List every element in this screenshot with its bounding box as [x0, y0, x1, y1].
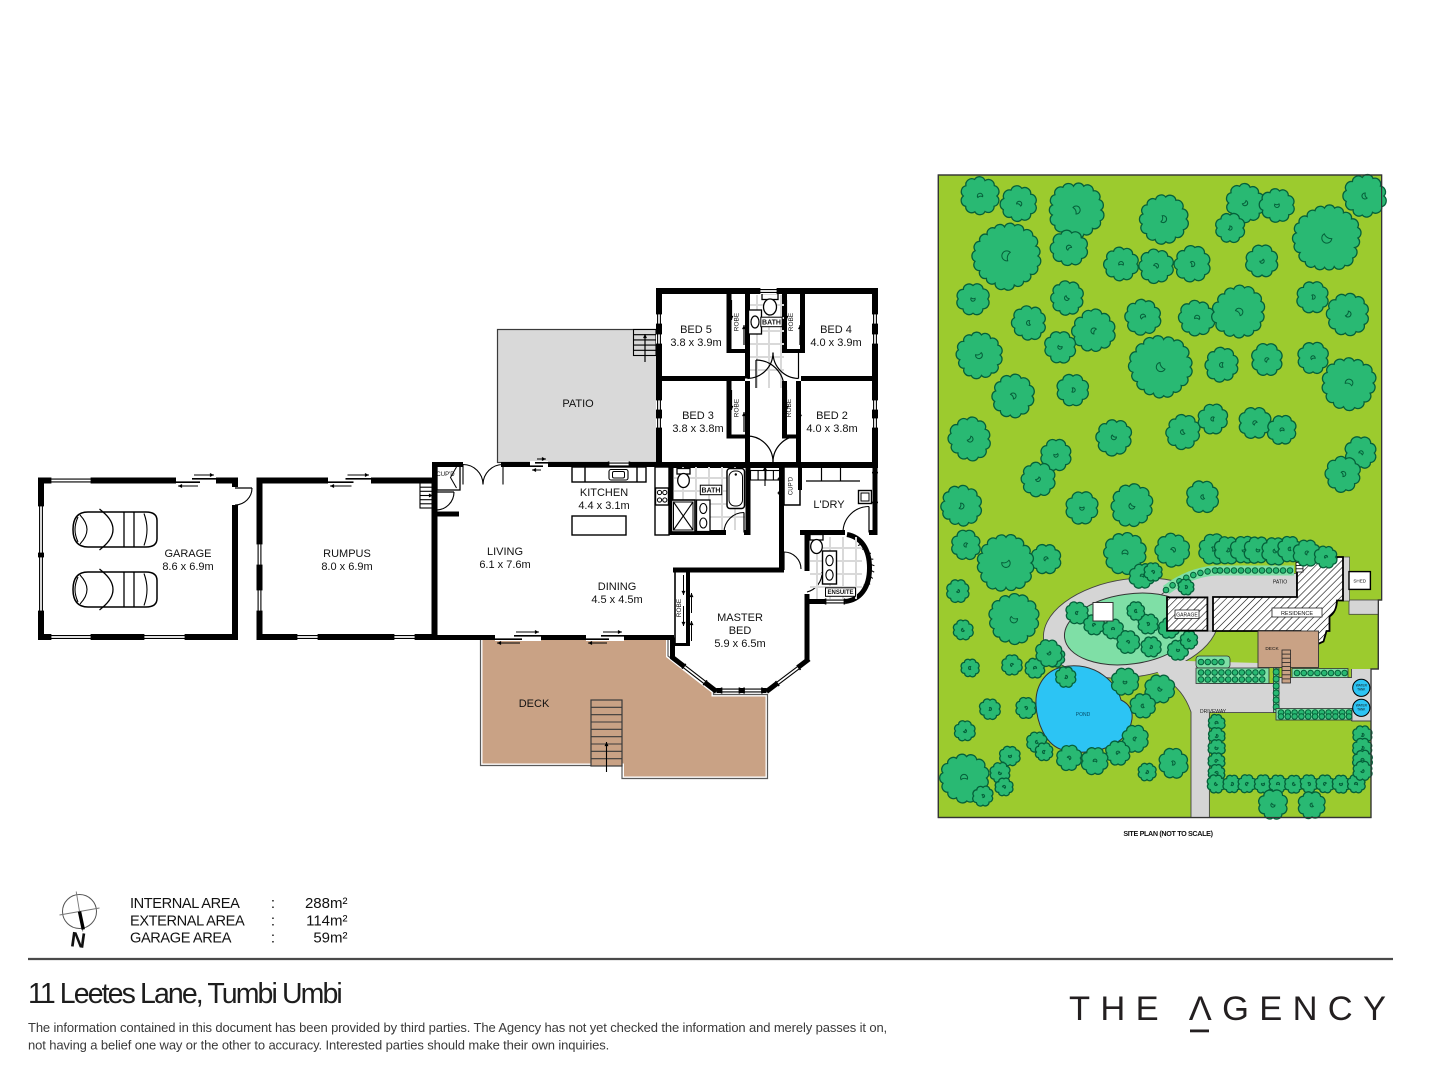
svg-text:ROBE: ROBE [676, 598, 683, 617]
svg-text:8.0 x 6.9m: 8.0 x 6.9m [321, 561, 372, 573]
svg-text:TANK: TANK [1357, 688, 1366, 692]
svg-text:5.9 x 6.5m: 5.9 x 6.5m [714, 638, 765, 650]
svg-text:GARAGE: GARAGE [1176, 612, 1198, 618]
svg-text:DINING: DINING [598, 581, 637, 593]
svg-text:114m²: 114m² [306, 912, 347, 929]
svg-text:4.4 x 3.1m: 4.4 x 3.1m [578, 500, 629, 512]
svg-text::: : [271, 912, 275, 929]
svg-text:MASTER: MASTER [717, 612, 763, 624]
svg-text::: : [271, 930, 275, 947]
svg-text:4.5 x 4.5m: 4.5 x 4.5m [591, 594, 642, 606]
svg-text:BATH: BATH [702, 488, 721, 495]
svg-text:BED 5: BED 5 [680, 324, 712, 336]
svg-text:GARAGE AREA: GARAGE AREA [130, 931, 232, 947]
svg-text:TANK: TANK [1357, 708, 1366, 712]
svg-text:ROBE: ROBE [788, 312, 795, 331]
svg-text:DECK: DECK [519, 698, 550, 710]
svg-text:INTERNAL AREA: INTERNAL AREA [130, 896, 240, 912]
svg-text:POND: POND [1076, 712, 1091, 718]
svg-text:SITE PLAN (NOT TO SCALE): SITE PLAN (NOT TO SCALE) [1123, 829, 1213, 838]
svg-text:RUMPUS: RUMPUS [323, 548, 371, 560]
svg-text:GARAGE: GARAGE [164, 548, 211, 560]
svg-text:CUP'D: CUP'D [789, 476, 795, 495]
svg-text:BED 2: BED 2 [816, 410, 848, 422]
svg-text:ROBE: ROBE [734, 398, 741, 417]
svg-text:SHED: SHED [1353, 579, 1366, 584]
svg-text:3.8 x 3.8m: 3.8 x 3.8m [672, 423, 723, 435]
svg-text:11 Leetes Lane, Tumbi Umbi: 11 Leetes Lane, Tumbi Umbi [28, 978, 341, 1010]
svg-text:8.6 x 6.9m: 8.6 x 6.9m [162, 561, 213, 573]
svg-text:BED 4: BED 4 [820, 324, 852, 336]
svg-text:KITCHEN: KITCHEN [580, 487, 628, 499]
svg-text:4.0 x 3.8m: 4.0 x 3.8m [806, 423, 857, 435]
svg-text:ROBE: ROBE [734, 312, 741, 331]
svg-text:The information contained in t: The information contained in this docume… [28, 1020, 887, 1035]
svg-text:DECK: DECK [1265, 646, 1279, 652]
svg-text:6.1 x 7.6m: 6.1 x 7.6m [479, 559, 530, 571]
svg-text:RESIDENCE: RESIDENCE [1281, 611, 1313, 617]
svg-text:BED 3: BED 3 [682, 410, 714, 422]
svg-text:3.8 x 3.9m: 3.8 x 3.9m [670, 337, 721, 349]
svg-text:BED: BED [729, 625, 752, 637]
svg-text:LIVING: LIVING [487, 546, 523, 558]
svg-text:288m²: 288m² [305, 895, 348, 912]
svg-text:59m²: 59m² [313, 930, 347, 947]
svg-text:4.0 x 3.9m: 4.0 x 3.9m [810, 337, 861, 349]
svg-text:L'DRY: L'DRY [813, 499, 845, 511]
svg-text:PATIO: PATIO [562, 398, 594, 410]
svg-text:THE ΛGENCY: THE ΛGENCY [1069, 990, 1396, 1028]
svg-text:not having a belief one way or: not having a belief one way or the other… [28, 1038, 609, 1053]
svg-text:EXTERNAL AREA: EXTERNAL AREA [130, 913, 245, 929]
svg-text:BATH: BATH [762, 320, 781, 327]
svg-text:PATIO: PATIO [1273, 580, 1287, 586]
svg-text:ENSUITE: ENSUITE [827, 590, 853, 596]
svg-text:N: N [69, 928, 87, 953]
svg-text::: : [271, 895, 275, 912]
